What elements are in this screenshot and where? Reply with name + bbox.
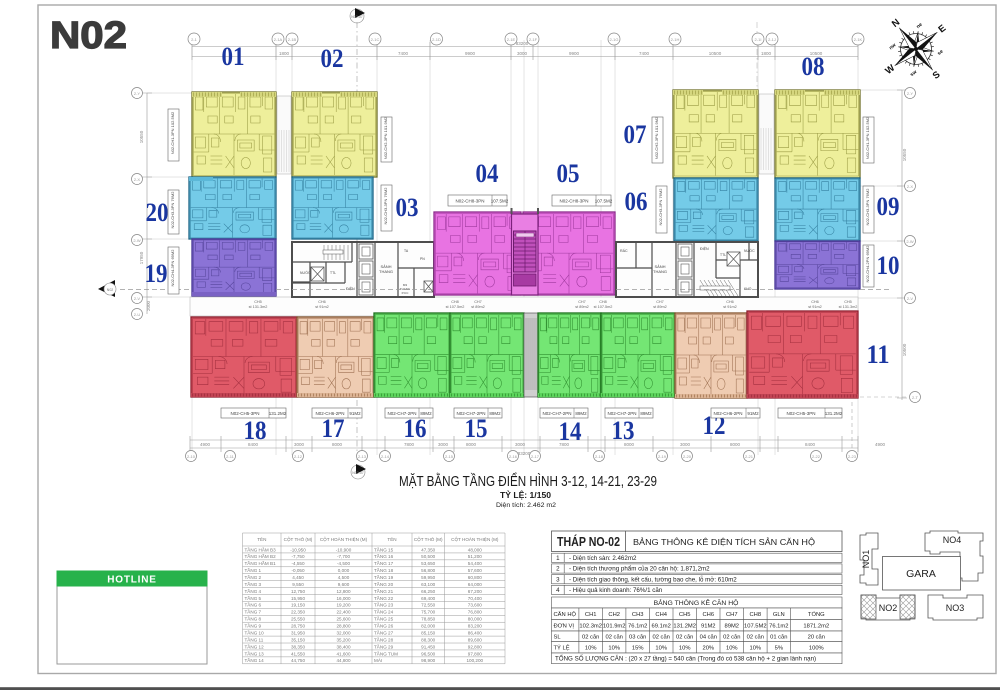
svg-text:01: 01 bbox=[222, 42, 245, 71]
svg-text:22,400: 22,400 bbox=[336, 610, 350, 615]
svg-text:TẦNG 7: TẦNG 7 bbox=[245, 609, 262, 615]
svg-text:TẦNG HẦM B2: TẦNG HẦM B2 bbox=[245, 553, 277, 559]
svg-text:NO2: NO2 bbox=[879, 603, 898, 613]
svg-text:67,200: 67,200 bbox=[468, 589, 482, 594]
svg-text:4900: 4900 bbox=[875, 442, 886, 447]
svg-text:NƯỚC: NƯỚC bbox=[744, 248, 755, 253]
svg-text:131.2M2: 131.2M2 bbox=[269, 411, 287, 416]
svg-text:TẦNG 11: TẦNG 11 bbox=[245, 636, 264, 642]
svg-text:10500: 10500 bbox=[709, 51, 722, 56]
svg-text:131.2M2: 131.2M2 bbox=[825, 411, 843, 416]
svg-text:ĐIỆN: ĐIỆN bbox=[346, 286, 355, 291]
svg-text:2-14: 2-14 bbox=[381, 454, 390, 459]
svg-text:73,600: 73,600 bbox=[468, 603, 482, 608]
svg-text:25,600: 25,600 bbox=[336, 617, 350, 622]
svg-text:CH6: CH6 bbox=[702, 612, 714, 618]
svg-text:CỘT HOÀN THIỆN (M): CỘT HOÀN THIỆN (M) bbox=[451, 535, 499, 542]
svg-text:02 căn: 02 căn bbox=[723, 635, 740, 641]
svg-text:17: 17 bbox=[322, 414, 345, 443]
svg-text:18: 18 bbox=[244, 416, 267, 445]
svg-text:TẦNG 21: TẦNG 21 bbox=[374, 588, 394, 594]
svg-text:2-1A: 2-1A bbox=[274, 37, 283, 42]
svg-text:st 91m2: st 91m2 bbox=[808, 305, 822, 309]
svg-text:02 căn: 02 căn bbox=[747, 635, 764, 641]
svg-text:83,200: 83,200 bbox=[468, 624, 482, 629]
svg-text:Diện tích: 2.462 m2: Diện tích: 2.462 m2 bbox=[496, 502, 556, 509]
svg-text:BẢNG THÔNG KÊ DIỆN TÍCH SẢN CĂ: BẢNG THÔNG KÊ DIỆN TÍCH SẢN CĂN HỘ bbox=[633, 536, 815, 547]
svg-text:4,500: 4,500 bbox=[338, 575, 350, 580]
svg-text:80,000: 80,000 bbox=[468, 617, 482, 622]
svg-text:3000: 3000 bbox=[515, 442, 526, 447]
svg-text:38,350: 38,350 bbox=[291, 644, 305, 649]
svg-text:66,250: 66,250 bbox=[421, 589, 435, 594]
svg-text:44,750: 44,750 bbox=[291, 658, 305, 663]
svg-text:MÁI: MÁI bbox=[374, 657, 382, 663]
svg-text:TẦNG 10: TẦNG 10 bbox=[245, 629, 265, 635]
svg-text:2-1G: 2-1G bbox=[610, 37, 619, 42]
svg-text:89M2: 89M2 bbox=[725, 624, 740, 630]
svg-text:82,000: 82,000 bbox=[421, 624, 435, 629]
svg-text:CH7: CH7 bbox=[474, 300, 482, 304]
svg-text:20 căn: 20 căn bbox=[808, 635, 825, 641]
svg-text:89M2: 89M2 bbox=[575, 411, 587, 416]
svg-text:-4,500: -4,500 bbox=[337, 561, 350, 566]
svg-text:107.5M2: 107.5M2 bbox=[491, 199, 509, 204]
svg-text:TẦNG TUM: TẦNG TUM bbox=[374, 650, 398, 656]
svg-text:N02-CH2-3PN 101.9M2: N02-CH2-3PN 101.9M2 bbox=[654, 116, 659, 159]
svg-text:64,000: 64,000 bbox=[468, 582, 482, 587]
svg-text:CH5: CH5 bbox=[254, 300, 262, 304]
svg-text:2-1F: 2-1F bbox=[529, 37, 538, 42]
svg-text:N02-CH6-2PN: N02-CH6-2PN bbox=[315, 411, 344, 416]
svg-text:50,500: 50,500 bbox=[421, 554, 435, 559]
svg-text:N02-CH5-3PN: N02-CH5-3PN bbox=[786, 411, 815, 416]
svg-text:14: 14 bbox=[559, 417, 582, 446]
svg-text:1871.2m2: 1871.2m2 bbox=[803, 624, 829, 630]
svg-text:85,150: 85,150 bbox=[421, 630, 435, 635]
svg-text:N02-CH7-2PN: N02-CH7-2PN bbox=[456, 411, 485, 416]
svg-text:TẦNG 8: TẦNG 8 bbox=[245, 616, 262, 622]
svg-text:TẦNG 6: TẦNG 6 bbox=[245, 602, 262, 608]
svg-text:st 89m2: st 89m2 bbox=[575, 305, 589, 309]
svg-text:53,650: 53,650 bbox=[421, 561, 435, 566]
svg-text:107.5M2: 107.5M2 bbox=[595, 199, 613, 204]
svg-text:2-1H: 2-1H bbox=[671, 37, 680, 42]
svg-text:N02-CH7-2PN: N02-CH7-2PN bbox=[542, 411, 571, 416]
svg-text:2-16: 2-16 bbox=[509, 454, 518, 459]
svg-text:N02-CH3-3PN 76M2: N02-CH3-3PN 76M2 bbox=[658, 188, 663, 226]
svg-text:NO3: NO3 bbox=[946, 603, 965, 613]
svg-text:TẦNG 29: TẦNG 29 bbox=[374, 643, 394, 649]
svg-text:7400: 7400 bbox=[398, 51, 409, 56]
svg-text:2-V: 2-V bbox=[134, 296, 141, 301]
svg-text:TẦNG 14: TẦNG 14 bbox=[245, 657, 265, 663]
svg-text:12,750: 12,750 bbox=[291, 589, 305, 594]
svg-text:st 107.5m2: st 107.5m2 bbox=[594, 305, 613, 309]
svg-text:THANG: THANG bbox=[379, 269, 393, 274]
svg-text:CH2: CH2 bbox=[608, 612, 620, 618]
svg-text:TẦNG 4: TẦNG 4 bbox=[245, 588, 262, 594]
svg-text:CH6: CH6 bbox=[318, 300, 326, 304]
svg-text:2-21: 2-21 bbox=[745, 454, 754, 459]
svg-text:51,200: 51,200 bbox=[468, 554, 482, 559]
svg-text:15%: 15% bbox=[632, 646, 644, 652]
svg-text:3000: 3000 bbox=[438, 442, 449, 447]
svg-text:2-W: 2-W bbox=[133, 238, 141, 243]
svg-text:91M2: 91M2 bbox=[349, 411, 361, 416]
svg-text:CH6: CH6 bbox=[726, 300, 734, 304]
svg-text:-4,550: -4,550 bbox=[291, 561, 304, 566]
svg-text:89M2: 89M2 bbox=[489, 411, 501, 416]
svg-text:47,350: 47,350 bbox=[421, 547, 435, 552]
svg-text:11: 11 bbox=[867, 340, 890, 369]
svg-text:107.5M2: 107.5M2 bbox=[744, 624, 767, 630]
svg-text:59,950: 59,950 bbox=[421, 575, 435, 580]
svg-text:97,800: 97,800 bbox=[468, 651, 482, 656]
svg-text:41,600: 41,600 bbox=[336, 651, 350, 656]
svg-text:2-10: 2-10 bbox=[187, 454, 196, 459]
svg-text:02 căn: 02 căn bbox=[652, 635, 669, 641]
svg-text:91M2: 91M2 bbox=[747, 411, 759, 416]
svg-text:0,000: 0,000 bbox=[338, 568, 350, 573]
svg-text:3: 3 bbox=[556, 576, 560, 583]
svg-text:-7,750: -7,750 bbox=[291, 554, 304, 559]
svg-text:TẦNG 26: TẦNG 26 bbox=[374, 623, 394, 629]
svg-text:N02-07: N02-07 bbox=[351, 15, 363, 19]
svg-text:60,800: 60,800 bbox=[468, 575, 482, 580]
svg-text:2-X: 2-X bbox=[134, 177, 141, 182]
svg-text:32,000: 32,000 bbox=[336, 630, 350, 635]
svg-text:TẦNG 5: TẦNG 5 bbox=[245, 595, 262, 601]
svg-text:2-23: 2-23 bbox=[848, 454, 857, 459]
svg-text:05: 05 bbox=[557, 159, 580, 188]
svg-text:TỔNG: TỔNG bbox=[808, 611, 825, 618]
svg-text:35,150: 35,150 bbox=[291, 637, 305, 642]
svg-text:10%: 10% bbox=[655, 646, 667, 652]
svg-text:28,800: 28,800 bbox=[336, 624, 350, 629]
svg-text:19,150: 19,150 bbox=[291, 603, 305, 608]
svg-text:TẦNG 22: TẦNG 22 bbox=[374, 595, 394, 601]
svg-text:MẶT BẰNG TẦNG ĐIỂN HÌNH 3-12,: MẶT BẰNG TẦNG ĐIỂN HÌNH 3-12, 14-21, 23-… bbox=[399, 472, 657, 490]
svg-text:TÊN: TÊN bbox=[257, 535, 266, 542]
svg-text:48,000: 48,000 bbox=[468, 547, 482, 552]
svg-text:TẦNG 25: TẦNG 25 bbox=[374, 616, 394, 622]
svg-text:CỘT THÔ (M): CỘT THÔ (M) bbox=[414, 536, 443, 542]
svg-text:25,550: 25,550 bbox=[291, 617, 305, 622]
svg-text:CH7: CH7 bbox=[656, 300, 664, 304]
svg-text:10%: 10% bbox=[726, 646, 738, 652]
svg-text:2-V: 2-V bbox=[907, 296, 914, 301]
svg-text:N02-CH7-2PN: N02-CH7-2PN bbox=[387, 411, 416, 416]
svg-text:st 107.5m2: st 107.5m2 bbox=[446, 305, 465, 309]
svg-text:3000: 3000 bbox=[294, 442, 305, 447]
svg-text:NO4: NO4 bbox=[943, 535, 962, 545]
svg-text:91M2: 91M2 bbox=[701, 624, 716, 630]
svg-text:N02-CH7-2PN: N02-CH7-2PN bbox=[607, 411, 636, 416]
svg-text:2-18: 2-18 bbox=[595, 454, 604, 459]
svg-text:HOTLINE: HOTLINE bbox=[107, 575, 157, 586]
svg-text:76.1m2: 76.1m2 bbox=[769, 624, 788, 630]
svg-text:5%: 5% bbox=[775, 646, 783, 652]
svg-text:TTL: TTL bbox=[330, 271, 336, 275]
svg-text:98,900: 98,900 bbox=[421, 658, 435, 663]
svg-text:TẦNG 1: TẦNG 1 bbox=[245, 567, 262, 573]
svg-text:2-T: 2-T bbox=[912, 395, 919, 400]
svg-text:2-17: 2-17 bbox=[531, 454, 540, 459]
svg-text:1800: 1800 bbox=[279, 51, 290, 56]
svg-text:N02-CH6-2PN: N02-CH6-2PN bbox=[713, 411, 742, 416]
svg-text:15,950: 15,950 bbox=[291, 596, 305, 601]
svg-text:st 131.3m2: st 131.3m2 bbox=[839, 305, 858, 309]
svg-text:- Diện tích giao thông, kết cấ: - Diện tích giao thông, kết cấu, tường b… bbox=[569, 576, 737, 583]
svg-text:TẦNG 2: TẦNG 2 bbox=[245, 574, 262, 580]
svg-text:N02-07: N02-07 bbox=[352, 471, 364, 475]
svg-text:TẦNG 20: TẦNG 20 bbox=[374, 581, 394, 587]
svg-text:N02-CH5-3PN: N02-CH5-3PN bbox=[230, 411, 259, 416]
svg-text:TẦNG 27: TẦNG 27 bbox=[374, 629, 394, 635]
svg-text:86,400: 86,400 bbox=[468, 630, 482, 635]
svg-text:89M2: 89M2 bbox=[420, 411, 432, 416]
svg-text:22,350: 22,350 bbox=[291, 610, 305, 615]
svg-text:10%: 10% bbox=[679, 646, 691, 652]
svg-text:91,450: 91,450 bbox=[421, 644, 435, 649]
svg-text:- Diện tích thương phẩm của 20: - Diện tích thương phẩm của 20 căn hộ: 1… bbox=[569, 566, 710, 573]
svg-text:1: 1 bbox=[556, 555, 560, 562]
svg-text:CH1: CH1 bbox=[585, 612, 597, 618]
svg-text:70,400: 70,400 bbox=[468, 596, 482, 601]
svg-text:TÊN: TÊN bbox=[387, 535, 396, 542]
svg-text:st 131.3m2: st 131.3m2 bbox=[249, 305, 268, 309]
svg-text:9,550: 9,550 bbox=[292, 582, 304, 587]
svg-text:CH3: CH3 bbox=[632, 612, 644, 618]
svg-text:TẦNG 16: TẦNG 16 bbox=[374, 553, 394, 559]
svg-text:20: 20 bbox=[146, 198, 169, 227]
svg-text:17950: 17950 bbox=[139, 251, 144, 264]
svg-text:2-12: 2-12 bbox=[294, 454, 303, 459]
svg-text:96,500: 96,500 bbox=[421, 651, 435, 656]
svg-text:08: 08 bbox=[802, 52, 825, 81]
svg-text:TẦNG 28: TẦNG 28 bbox=[374, 636, 394, 642]
svg-text:CH5: CH5 bbox=[844, 300, 852, 304]
svg-text:CỘT HOÀN THIỆN (M): CỘT HOÀN THIỆN (M) bbox=[320, 535, 368, 542]
svg-text:9900: 9900 bbox=[569, 51, 580, 56]
svg-text:1800: 1800 bbox=[761, 51, 772, 56]
svg-text:TẦNG 24: TẦNG 24 bbox=[374, 609, 394, 615]
svg-text:3000: 3000 bbox=[680, 442, 691, 447]
svg-text:8000: 8000 bbox=[730, 442, 741, 447]
svg-text:st 89m2: st 89m2 bbox=[471, 305, 485, 309]
svg-text:N02-CH4-2PN 69M2: N02-CH4-2PN 69M2 bbox=[865, 245, 870, 283]
svg-text:2-1I: 2-1I bbox=[755, 37, 762, 42]
svg-text:03 căn: 03 căn bbox=[629, 635, 646, 641]
svg-text:12,800: 12,800 bbox=[336, 589, 350, 594]
svg-text:16,000: 16,000 bbox=[336, 596, 350, 601]
svg-text:16: 16 bbox=[404, 414, 427, 443]
svg-text:N02: N02 bbox=[107, 288, 113, 292]
svg-text:TẦNG 12: TẦNG 12 bbox=[245, 643, 265, 649]
svg-text:100%: 100% bbox=[809, 646, 824, 652]
svg-text:2-13: 2-13 bbox=[358, 454, 367, 459]
svg-text:TẦNG 9: TẦNG 9 bbox=[245, 623, 262, 629]
svg-text:7400: 7400 bbox=[639, 51, 650, 56]
svg-text:st 91m2: st 91m2 bbox=[315, 305, 329, 309]
svg-text:54,400: 54,400 bbox=[468, 561, 482, 566]
svg-text:20%: 20% bbox=[702, 646, 714, 652]
svg-text:TỶ LỆ: TỶ LỆ bbox=[554, 644, 570, 652]
svg-text:78,850: 78,850 bbox=[421, 617, 435, 622]
svg-text:9,600: 9,600 bbox=[338, 582, 350, 587]
svg-text:N02-CH8-3PN: N02-CH8-3PN bbox=[455, 199, 484, 204]
svg-text:9900: 9900 bbox=[465, 51, 476, 56]
svg-text:N02-CH1-3PN 102.5M2: N02-CH1-3PN 102.5M2 bbox=[170, 111, 175, 154]
svg-text:13: 13 bbox=[612, 416, 635, 445]
svg-text:2-1: 2-1 bbox=[191, 37, 198, 42]
svg-text:101.9m2: 101.9m2 bbox=[603, 624, 626, 630]
svg-text:N02-CH8-3PN: N02-CH8-3PN bbox=[559, 199, 588, 204]
svg-text:04 căn: 04 căn bbox=[700, 635, 717, 641]
svg-text:75,700: 75,700 bbox=[421, 610, 435, 615]
svg-text:TẦNG 23: TẦNG 23 bbox=[374, 602, 394, 608]
svg-text:- Diện tích sàn: 2.462m2: - Diện tích sàn: 2.462m2 bbox=[569, 555, 637, 562]
svg-text:TỶ LỆ: 1/150: TỶ LỆ: 1/150 bbox=[500, 491, 552, 500]
svg-text:38,400: 38,400 bbox=[336, 644, 350, 649]
svg-text:69,400: 69,400 bbox=[421, 596, 435, 601]
svg-text:2-15: 2-15 bbox=[445, 454, 454, 459]
svg-text:2-20: 2-20 bbox=[683, 454, 692, 459]
svg-text:76.1m2: 76.1m2 bbox=[628, 624, 647, 630]
svg-text:19: 19 bbox=[145, 259, 168, 288]
svg-text:CH8: CH8 bbox=[599, 300, 607, 304]
svg-text:-0,050: -0,050 bbox=[291, 568, 304, 573]
svg-text:10500: 10500 bbox=[902, 343, 907, 356]
svg-text:CĂN HỘ: CĂN HỘ bbox=[554, 611, 577, 618]
svg-text:st 89m2: st 89m2 bbox=[653, 305, 667, 309]
svg-text:RÁC: RÁC bbox=[620, 249, 628, 253]
svg-text:4,450: 4,450 bbox=[292, 575, 304, 580]
svg-text:2-U: 2-U bbox=[134, 312, 141, 317]
svg-text:TẦNG HẦM B3: TẦNG HẦM B3 bbox=[245, 546, 277, 552]
svg-text:63,100: 63,100 bbox=[421, 582, 435, 587]
svg-text:-7,700: -7,700 bbox=[337, 554, 350, 559]
svg-text:CH5: CH5 bbox=[679, 612, 691, 618]
svg-text:NO1: NO1 bbox=[861, 550, 871, 569]
svg-text:2-W: 2-W bbox=[906, 239, 914, 244]
svg-text:92,800: 92,800 bbox=[468, 644, 482, 649]
svg-text:GLN: GLN bbox=[773, 612, 785, 618]
svg-text:07: 07 bbox=[624, 120, 647, 149]
svg-text:2000: 2000 bbox=[146, 300, 151, 311]
svg-text:THÁP NO-02: THÁP NO-02 bbox=[557, 534, 620, 549]
svg-text:CH7: CH7 bbox=[578, 300, 586, 304]
svg-text:-10,900: -10,900 bbox=[336, 547, 352, 552]
svg-text:83200: 83200 bbox=[516, 41, 529, 46]
svg-text:2-11: 2-11 bbox=[226, 454, 234, 459]
svg-text:72,550: 72,550 bbox=[421, 603, 435, 608]
svg-text:31,950: 31,950 bbox=[291, 630, 305, 635]
svg-text:2-1J: 2-1J bbox=[768, 37, 776, 42]
svg-text:02: 02 bbox=[321, 44, 344, 73]
svg-text:88,300: 88,300 bbox=[421, 637, 435, 642]
svg-text:2: 2 bbox=[556, 566, 560, 573]
svg-text:TẦNG 17: TẦNG 17 bbox=[374, 560, 394, 566]
svg-text:01 căn: 01 căn bbox=[770, 635, 787, 641]
svg-text:SL: SL bbox=[554, 635, 562, 641]
svg-text:ĐIỆN: ĐIỆN bbox=[700, 246, 709, 251]
svg-text:04: 04 bbox=[476, 159, 499, 188]
svg-text:- Hiệu quả kinh doanh: 76%/1 c: - Hiệu quả kinh doanh: 76%/1 căn bbox=[569, 587, 663, 594]
svg-text:8400: 8400 bbox=[805, 442, 816, 447]
svg-text:THANG: THANG bbox=[653, 269, 667, 274]
svg-text:N02-CH3-3PN 76M2: N02-CH3-3PN 76M2 bbox=[865, 188, 870, 226]
svg-text:2-1K: 2-1K bbox=[854, 37, 863, 42]
svg-text:44,800: 44,800 bbox=[336, 658, 350, 663]
svg-text:N02-CH2-3PN 101.9M2: N02-CH2-3PN 101.9M2 bbox=[383, 116, 388, 159]
svg-text:N02-CH3-3PN 76M2: N02-CH3-3PN 76M2 bbox=[170, 191, 175, 229]
svg-text:02 căn: 02 căn bbox=[676, 635, 693, 641]
svg-text:102.3m2: 102.3m2 bbox=[579, 624, 602, 630]
svg-text:KHO: KHO bbox=[744, 287, 752, 291]
svg-text:02 căn: 02 căn bbox=[582, 635, 599, 641]
svg-text:10%: 10% bbox=[608, 646, 620, 652]
svg-text:GARA: GARA bbox=[906, 568, 936, 580]
svg-text:TẦNG HẦM B1: TẦNG HẦM B1 bbox=[245, 560, 277, 566]
svg-text:28,750: 28,750 bbox=[291, 624, 305, 629]
svg-text:TẦNG 15: TẦNG 15 bbox=[374, 546, 394, 552]
svg-text:15: 15 bbox=[465, 414, 488, 443]
svg-text:NƯỚC: NƯỚC bbox=[300, 270, 311, 275]
svg-text:CH6: CH6 bbox=[811, 300, 819, 304]
svg-text:2-1E: 2-1E bbox=[507, 37, 516, 42]
svg-text:2-X: 2-X bbox=[907, 184, 914, 189]
svg-text:-10,950: -10,950 bbox=[290, 547, 306, 552]
svg-text:CH8: CH8 bbox=[749, 612, 761, 618]
svg-text:st 91m2: st 91m2 bbox=[723, 305, 737, 309]
svg-text:03: 03 bbox=[396, 193, 419, 222]
svg-text:CỘT THÔ (M): CỘT THÔ (M) bbox=[284, 536, 313, 542]
svg-text:19,200: 19,200 bbox=[336, 603, 350, 608]
svg-text:2-Y: 2-Y bbox=[907, 91, 914, 96]
svg-text:41,550: 41,550 bbox=[291, 651, 305, 656]
svg-text:2-Y: 2-Y bbox=[134, 91, 141, 96]
svg-text:10550: 10550 bbox=[902, 148, 907, 161]
svg-text:09: 09 bbox=[877, 192, 900, 221]
svg-text:89M2: 89M2 bbox=[640, 411, 652, 416]
svg-text:TẦNG 3: TẦNG 3 bbox=[245, 581, 262, 587]
svg-text:2-1D: 2-1D bbox=[432, 37, 441, 42]
svg-text:4900: 4900 bbox=[200, 442, 211, 447]
svg-text:TTL: TTL bbox=[720, 253, 726, 257]
svg-text:CH7: CH7 bbox=[726, 612, 738, 618]
svg-text:BẢNG THÔNG KÊ CĂN HỘ: BẢNG THÔNG KÊ CĂN HỘ bbox=[654, 598, 739, 607]
svg-text:57,600: 57,600 bbox=[468, 568, 482, 573]
svg-text:131.2M2: 131.2M2 bbox=[673, 624, 696, 630]
svg-text:56,800: 56,800 bbox=[421, 568, 435, 573]
svg-text:10%: 10% bbox=[585, 646, 597, 652]
svg-text:CH4: CH4 bbox=[655, 612, 667, 618]
svg-text:N02-CH3-3PN 76M2: N02-CH3-3PN 76M2 bbox=[383, 187, 388, 225]
svg-text:2-19: 2-19 bbox=[658, 454, 667, 459]
svg-text:35,200: 35,200 bbox=[336, 637, 350, 642]
svg-text:83200: 83200 bbox=[518, 451, 531, 456]
svg-text:10%: 10% bbox=[749, 646, 761, 652]
svg-text:CH8: CH8 bbox=[451, 300, 459, 304]
svg-text:4: 4 bbox=[556, 587, 560, 594]
svg-text:2-22: 2-22 bbox=[812, 454, 821, 459]
svg-text:89,600: 89,600 bbox=[468, 637, 482, 642]
svg-text:10550: 10550 bbox=[139, 130, 144, 143]
svg-text:76,800: 76,800 bbox=[468, 610, 482, 615]
svg-text:N02-CH1-3PN 102.5M2: N02-CH1-3PN 102.5M2 bbox=[865, 116, 870, 159]
